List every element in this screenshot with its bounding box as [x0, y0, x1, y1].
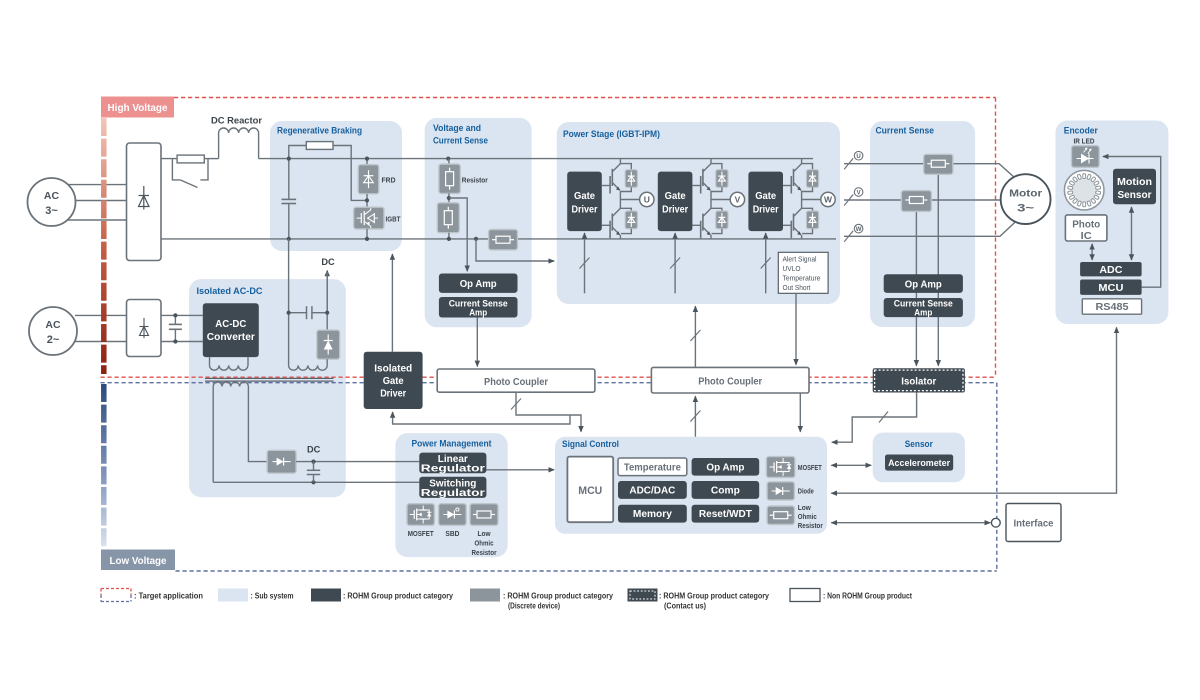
svg-text:Gate: Gate: [383, 376, 404, 387]
svg-text:Reset/WDT: Reset/WDT: [699, 508, 753, 520]
svg-text:: ROHM Group product category: : ROHM Group product category: [343, 592, 454, 601]
svg-text:Converter: Converter: [207, 332, 255, 343]
svg-text:Photo Coupler: Photo Coupler: [484, 377, 548, 388]
svg-text:Out Short: Out Short: [783, 285, 811, 292]
svg-text:Driver: Driver: [662, 205, 688, 216]
svg-text:Isolated AC-DC: Isolated AC-DC: [197, 286, 263, 296]
svg-text:W: W: [856, 227, 862, 233]
svg-text:DC Reactor: DC Reactor: [211, 116, 262, 126]
svg-text:Signal Control: Signal Control: [562, 439, 619, 450]
svg-text:UVLO: UVLO: [783, 266, 802, 273]
svg-text:Regulator: Regulator: [421, 464, 485, 475]
svg-text:Sensor: Sensor: [905, 439, 933, 450]
svg-text:3~: 3~: [1017, 203, 1035, 215]
svg-text:Photo Coupler: Photo Coupler: [698, 377, 762, 388]
svg-text:IC: IC: [1081, 231, 1093, 242]
svg-text:Accelerometer: Accelerometer: [888, 458, 950, 469]
svg-text:Gate: Gate: [665, 191, 686, 202]
svg-text:Temperature: Temperature: [624, 463, 682, 474]
svg-text:Low: Low: [478, 531, 492, 538]
svg-text:Amp: Amp: [914, 308, 932, 318]
svg-text:AC: AC: [44, 190, 60, 202]
svg-text:: ROHM Group product category: : ROHM Group product category: [503, 592, 614, 601]
svg-text:ADC: ADC: [1099, 265, 1123, 276]
svg-text:Low Voltage: Low Voltage: [110, 555, 167, 567]
svg-text:High Voltage: High Voltage: [108, 102, 168, 114]
svg-text:Temperature: Temperature: [783, 276, 821, 283]
svg-text:Driver: Driver: [572, 205, 598, 216]
svg-text:Resistor: Resistor: [798, 523, 823, 530]
svg-text:Driver: Driver: [753, 205, 779, 216]
svg-text:Amp: Amp: [469, 308, 487, 318]
svg-text:Memory: Memory: [633, 508, 672, 520]
svg-text:(Discrete device): (Discrete device): [508, 602, 560, 611]
svg-text:U: U: [856, 154, 860, 160]
svg-text:2~: 2~: [47, 334, 60, 346]
svg-text:Photo: Photo: [1072, 220, 1100, 231]
svg-text:W: W: [824, 195, 833, 205]
svg-text:V: V: [735, 195, 741, 205]
svg-text:Power Management: Power Management: [412, 439, 493, 450]
svg-text:AC: AC: [45, 319, 61, 331]
svg-text:Current Sense: Current Sense: [876, 126, 935, 136]
svg-text:Isolator: Isolator: [901, 376, 936, 388]
svg-text:DC: DC: [307, 445, 321, 455]
svg-text:Isolated: Isolated: [374, 364, 412, 375]
svg-text:U: U: [644, 195, 650, 205]
svg-text:Regulator: Regulator: [421, 488, 485, 499]
svg-text:MOSFET: MOSFET: [798, 465, 823, 472]
svg-text:IGBT: IGBT: [386, 217, 402, 224]
svg-text:ADC/DAC: ADC/DAC: [629, 485, 675, 497]
svg-text:Op Amp: Op Amp: [905, 279, 942, 291]
svg-text:V: V: [857, 191, 861, 197]
svg-text:Comp: Comp: [711, 485, 740, 497]
svg-text:: ROHM Group product category: : ROHM Group product category: [659, 592, 770, 601]
svg-text:Current Sense: Current Sense: [433, 136, 488, 146]
svg-text:MCU: MCU: [578, 485, 602, 497]
svg-text:MOSFET: MOSFET: [408, 531, 435, 538]
svg-text:Gate: Gate: [574, 191, 595, 202]
svg-text:Resistor: Resistor: [462, 178, 488, 185]
svg-text:Alert Signal: Alert Signal: [783, 257, 817, 264]
svg-text:SBD: SBD: [445, 531, 459, 538]
svg-text:IR LED: IR LED: [1074, 139, 1095, 146]
svg-text:: Sub system: : Sub system: [251, 592, 294, 601]
svg-text:Regenerative Braking: Regenerative Braking: [277, 126, 362, 136]
svg-text:Op Amp: Op Amp: [706, 462, 744, 474]
svg-text:Diode: Diode: [798, 489, 814, 496]
svg-text:DC: DC: [321, 257, 335, 267]
svg-text:: Non ROHM Group product: : Non ROHM Group product: [823, 592, 912, 601]
svg-text:(Contact us): (Contact us): [664, 602, 706, 611]
svg-text:Motion: Motion: [1117, 177, 1152, 188]
svg-text:Driver: Driver: [380, 389, 406, 400]
svg-text:MCU: MCU: [1098, 283, 1123, 294]
svg-text:Gate: Gate: [755, 191, 776, 202]
svg-text:Power Stage (IGBT-IPM): Power Stage (IGBT-IPM): [563, 129, 660, 139]
svg-text:Sensor: Sensor: [1118, 190, 1152, 201]
svg-text:Op Amp: Op Amp: [460, 278, 497, 290]
svg-text:Voltage and: Voltage and: [433, 123, 481, 133]
svg-text:Low: Low: [798, 505, 812, 512]
svg-text:Resistor: Resistor: [472, 550, 497, 557]
svg-text:Encoder: Encoder: [1064, 126, 1098, 136]
svg-text:FRD: FRD: [382, 178, 396, 185]
svg-text:Ohmic: Ohmic: [798, 514, 817, 521]
svg-text:RS485: RS485: [1096, 302, 1129, 313]
svg-text:3~: 3~: [45, 205, 58, 217]
svg-text:AC-DC: AC-DC: [215, 319, 247, 330]
svg-text:Interface: Interface: [1014, 519, 1054, 530]
svg-text:Motor: Motor: [1009, 188, 1042, 200]
svg-text:Ohmic: Ohmic: [475, 541, 494, 548]
svg-text:: Target application: : Target application: [134, 592, 203, 601]
